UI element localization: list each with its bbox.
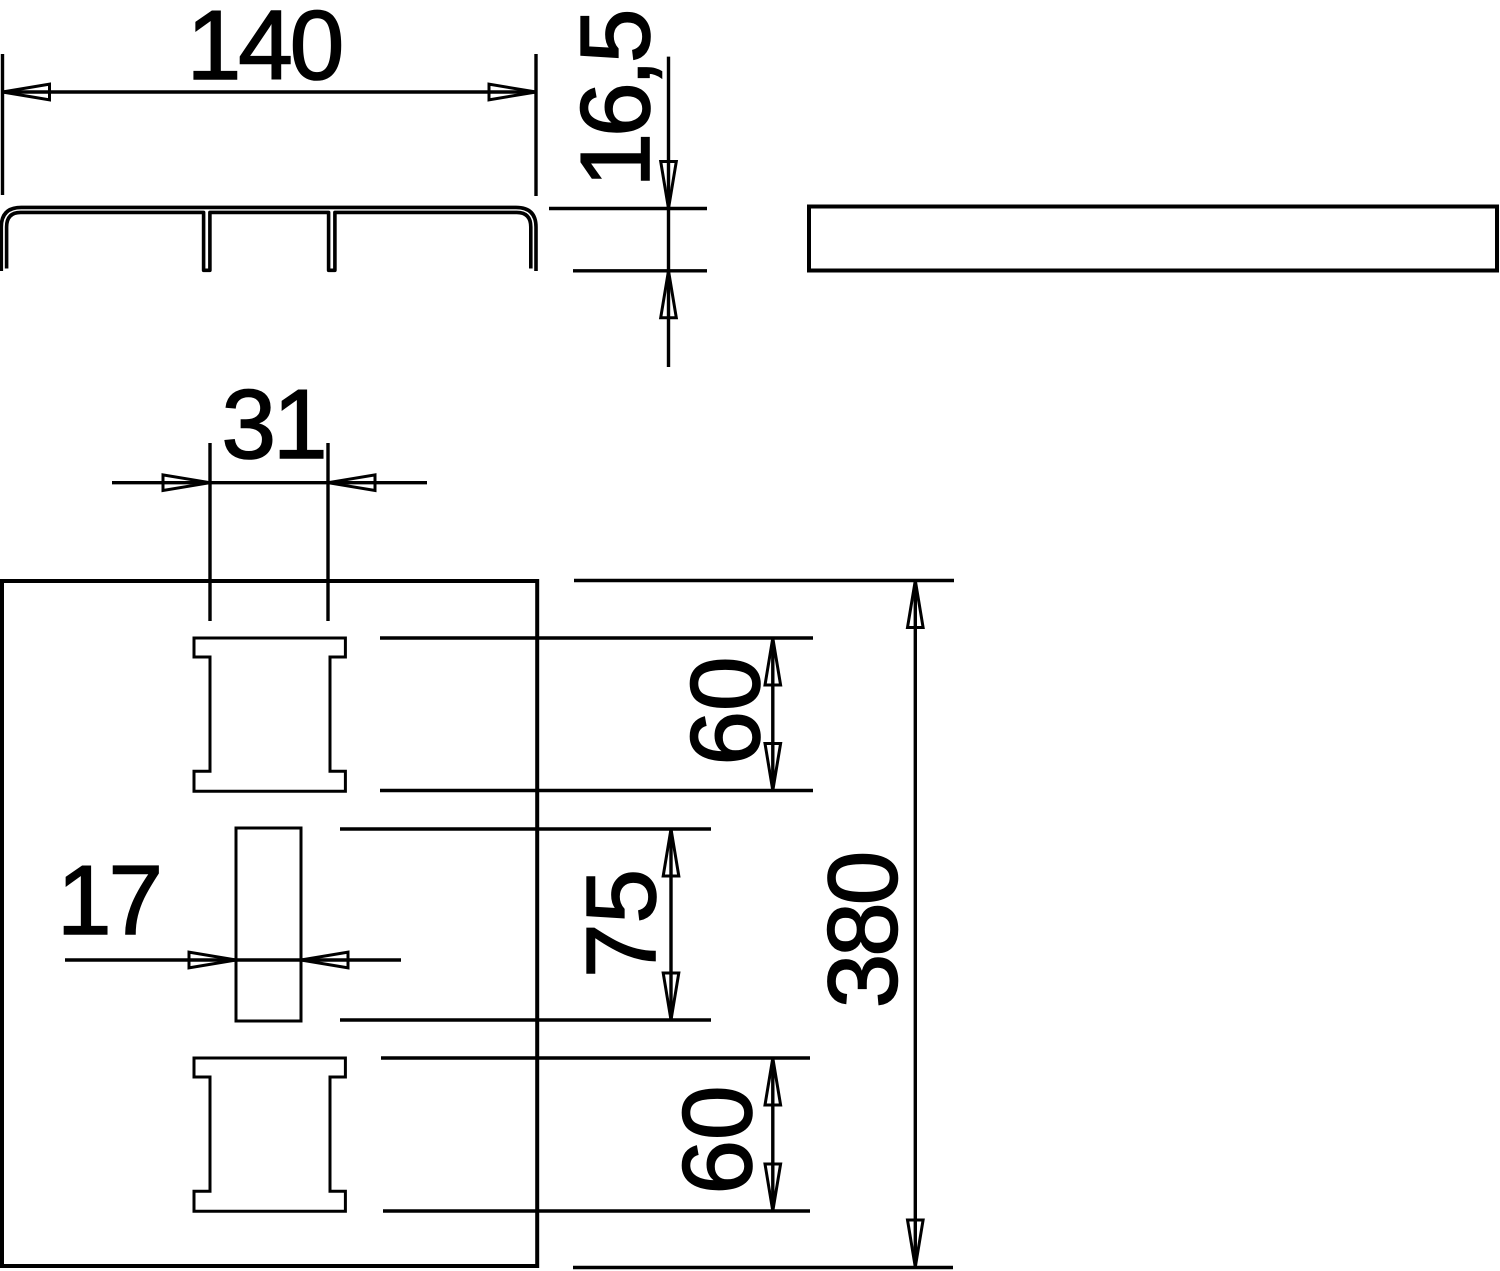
svg-text:16,5: 16,5: [560, 12, 670, 187]
svg-text:140: 140: [187, 0, 342, 100]
svg-text:380: 380: [808, 854, 918, 1009]
svg-text:60: 60: [662, 1085, 772, 1194]
svg-text:31: 31: [221, 369, 324, 479]
svg-text:17: 17: [57, 845, 160, 955]
svg-text:60: 60: [670, 656, 780, 765]
svg-text:75: 75: [566, 869, 676, 978]
